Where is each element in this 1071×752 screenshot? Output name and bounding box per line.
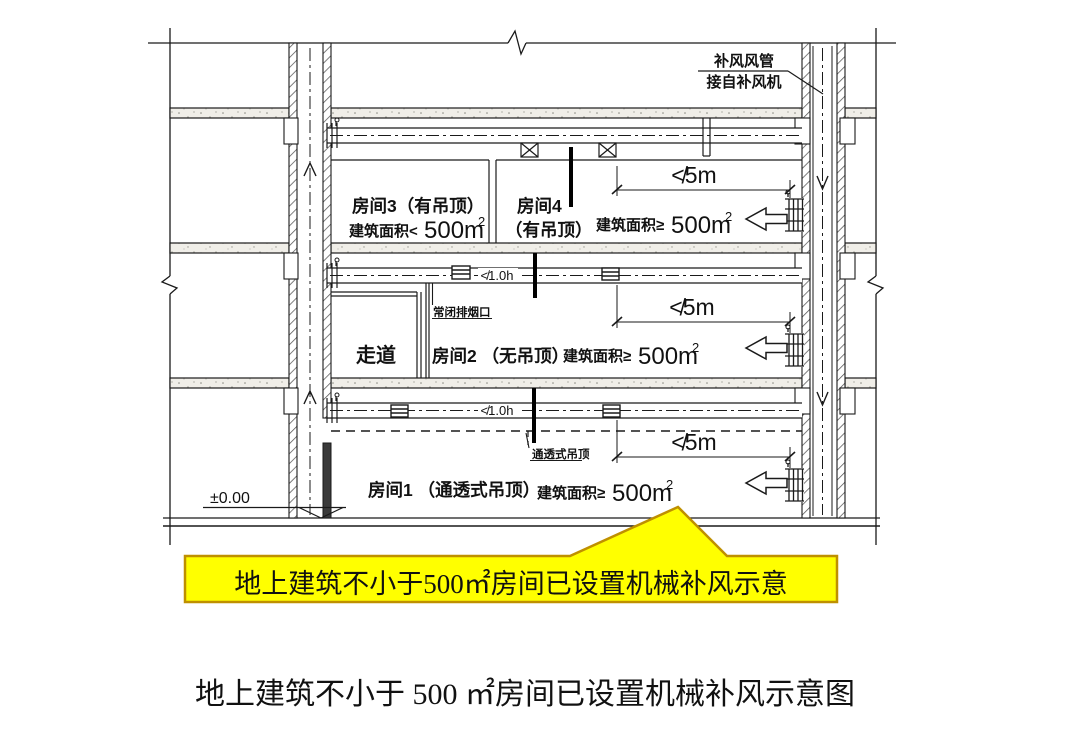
airflow-arrow-icon	[746, 208, 787, 230]
room2-area-sup: 2	[692, 340, 699, 355]
wall-grille-icon	[785, 325, 804, 367]
callout-text: 地上建筑不小于500㎡房间已设置机械补风示意	[234, 569, 788, 599]
dimension-floor2: ≮5m	[669, 294, 714, 320]
duct-fire-rating-floor2: ≮1.0h	[481, 268, 514, 283]
corridor-name: 走道	[356, 343, 396, 367]
room3-area-value: 500m	[424, 217, 484, 244]
open-ceiling-label: 通透式吊顶	[532, 447, 590, 461]
duct-fire-rating-floor1: ≮1.0h	[481, 403, 514, 418]
room3-area-sup: 2	[478, 214, 485, 229]
ceiling-diffuser-icon	[521, 143, 616, 157]
airflow-arrow-icon	[746, 472, 787, 494]
wall-grille-icon	[785, 190, 804, 232]
callout-banner: 地上建筑不小于500㎡房间已设置机械补风示意	[185, 507, 837, 602]
supply-duct-note-line2: 接自补风机	[706, 73, 781, 91]
elevation-value: ±0.00	[210, 490, 250, 507]
supply-duct-note-line1: 补风风管	[713, 52, 774, 70]
room4-area-prefix: 建筑面积≥	[596, 216, 664, 234]
room2-area-value: 500m	[638, 343, 698, 370]
exhaust-duct-floor2: ≮1.0h	[327, 258, 802, 288]
exhaust-duct-floor1: ≮1.0h	[327, 393, 802, 423]
room2-area-prefix: 建筑面积≥	[563, 347, 631, 365]
room4-name-line2: （有吊顶）	[505, 220, 593, 240]
exhaust-shaft	[289, 43, 331, 518]
smoke-outlet-annotation: 常闭排烟口	[430, 283, 492, 319]
wall-grille-icon	[785, 460, 804, 502]
room4-area-sup: 2	[725, 209, 732, 224]
smoke-outlet-label: 常闭排烟口	[433, 305, 491, 319]
supply-shaft	[802, 43, 845, 518]
room1-area-prefix: 建筑面积≥	[537, 484, 605, 502]
room2-name: 房间2 （无吊顶）	[432, 346, 569, 366]
room4-area-value: 500m	[671, 212, 731, 239]
airflow-arrow-icon	[746, 337, 787, 359]
diagram-caption: 地上建筑不小于 500 ㎡房间已设置机械补风示意图	[195, 678, 855, 711]
dimension-floor3: ≮5m	[671, 162, 716, 188]
dimension-floor1: ≮5m	[671, 429, 716, 455]
smoke-curtains	[534, 147, 571, 443]
building-section-diagram: ≮1.0h ≮1.0h	[0, 0, 1071, 752]
room1-area-sup: 2	[666, 477, 673, 492]
exhaust-duct-floor3	[327, 118, 802, 157]
room1-area-value: 500m	[612, 480, 672, 507]
room3-area-prefix: 建筑面积<	[349, 222, 418, 240]
structure-frame	[148, 28, 896, 545]
room3-name: 房间3（有吊顶）	[352, 196, 484, 216]
room4-name-line1: 房间4	[517, 196, 562, 216]
room1-name: 房间1 （通透式吊顶）	[368, 480, 540, 500]
ventilation-diagram-page: ≮1.0h ≮1.0h	[0, 0, 1071, 752]
